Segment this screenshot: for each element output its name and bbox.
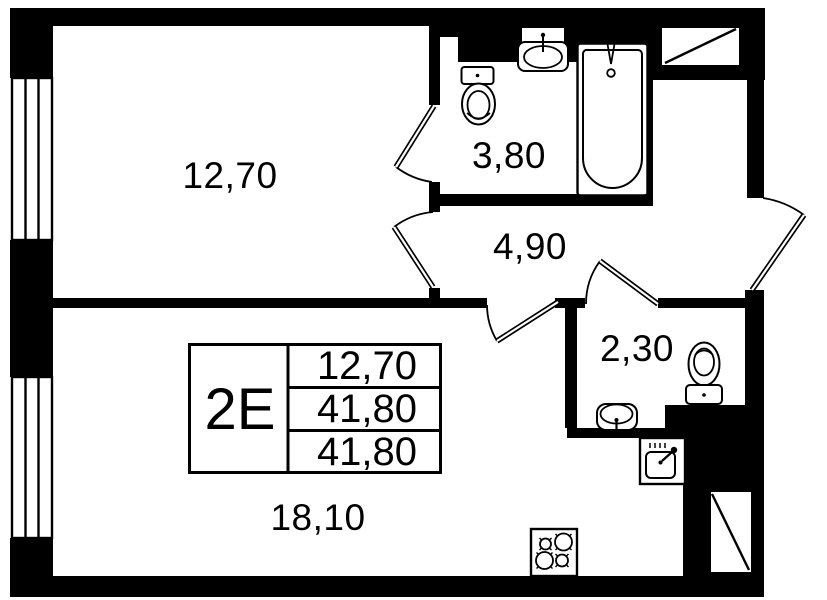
toilet-icon: [462, 67, 496, 125]
room-area-label-wc: 2,30: [600, 328, 674, 369]
unit-type-label: 2Е: [205, 377, 276, 442]
wc-sink-icon: [597, 404, 637, 431]
info-table-row1: 12,70: [317, 344, 417, 388]
info-table: 2Е 12,70 41,80 41,80: [190, 344, 442, 474]
room-area-label-hallway: 4,90: [493, 226, 567, 267]
sink-icon: [518, 28, 568, 71]
info-table-row3: 41,80: [317, 430, 417, 474]
kitchen-sink-icon: [640, 438, 685, 484]
info-table-row2: 41,80: [317, 387, 417, 431]
door-living-kitchen: [487, 302, 558, 341]
door-bedroom: [394, 212, 433, 287]
room-area-label-bedroom: 12,70: [182, 155, 277, 196]
stove-icon: [531, 529, 577, 576]
vent-shaft-top-icon: [661, 27, 740, 66]
door-entry: [752, 198, 804, 290]
room-area-label-bathroom: 3,80: [472, 135, 546, 176]
wc-toilet-icon: [686, 343, 722, 405]
door-bathroom: [396, 106, 434, 182]
wall-niche: [440, 37, 458, 62]
window-bottom-icon: [12, 377, 52, 538]
vent-shaft-bottom-icon: [710, 491, 752, 573]
floor-plan: 12,70 3,80 4,90 2,30 18,10 2Е 12,70 41,8…: [0, 0, 827, 600]
door-wc: [586, 261, 658, 304]
window-top-icon: [12, 78, 52, 240]
bathtub-icon: [578, 44, 648, 196]
room-area-label-living-kitchen: 18,10: [270, 497, 365, 538]
